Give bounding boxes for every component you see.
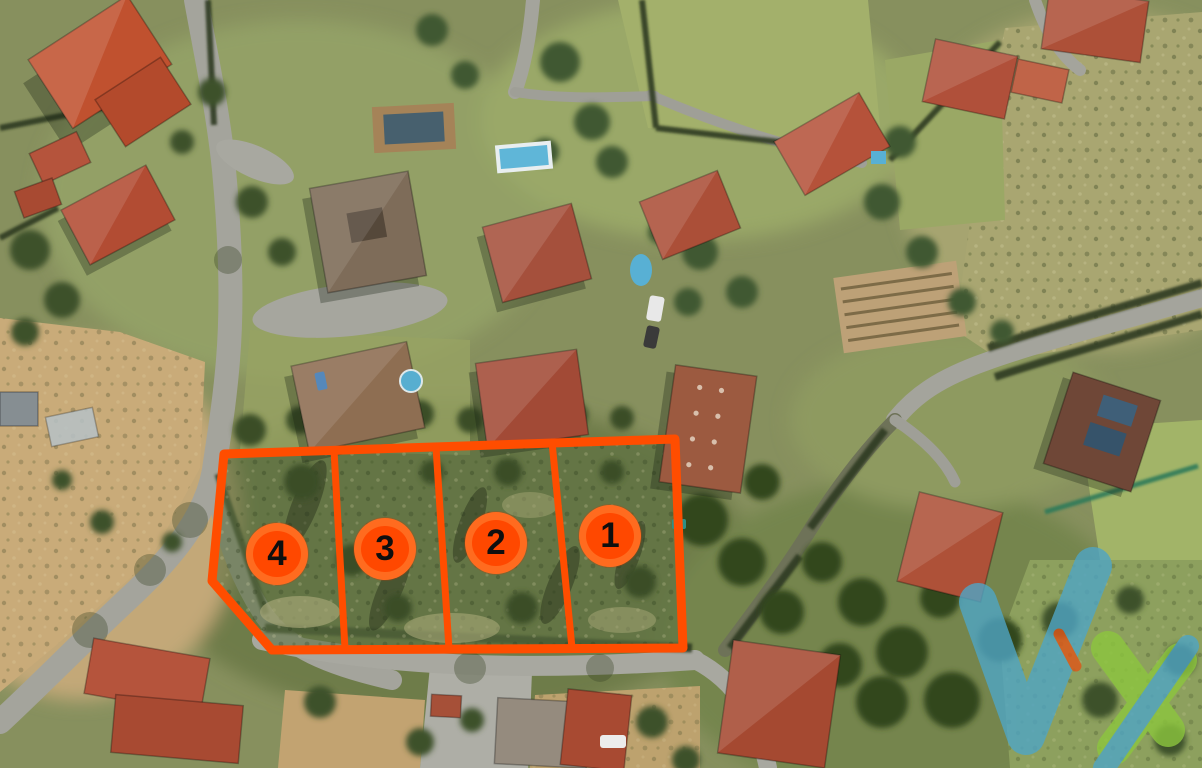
plot-marker-inner: 1 — [586, 513, 634, 559]
small-pool — [871, 151, 886, 164]
plot-marker-3: 3 — [354, 518, 416, 580]
plot-marker-4: 4 — [246, 523, 308, 585]
round-pool — [400, 370, 422, 392]
plot-number: 2 — [486, 525, 505, 560]
plot-number: 1 — [600, 518, 619, 553]
aerial-photo: 4 3 2 1 — [0, 0, 1202, 768]
plot-marker-1: 1 — [579, 505, 641, 567]
house-roof — [301, 171, 428, 303]
swimming-pool — [495, 141, 553, 174]
satellite-scene — [0, 0, 1202, 768]
plot-marker-inner: 3 — [361, 526, 409, 572]
house-roof — [650, 364, 757, 501]
plot-marker-2: 2 — [465, 512, 527, 574]
plot-number: 4 — [267, 536, 286, 571]
plot-number: 3 — [375, 531, 394, 566]
kidney-pool — [630, 254, 652, 286]
plot-marker-inner: 2 — [472, 520, 520, 566]
plot-marker-inner: 4 — [253, 531, 301, 577]
dark-pool — [372, 103, 456, 153]
